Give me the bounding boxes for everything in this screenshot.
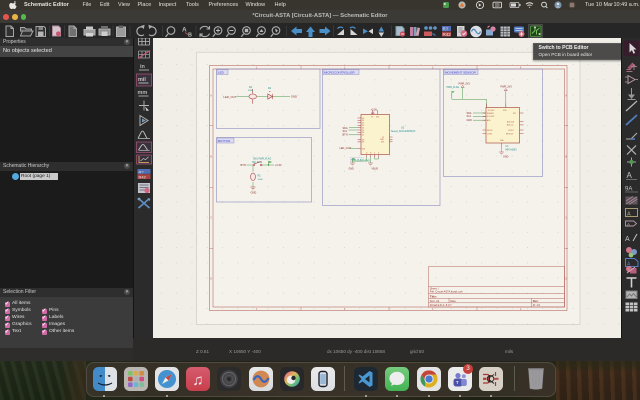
svg-text:PWR_FLAG: PWR_FLAG <box>447 86 460 89</box>
svg-text:GND: GND <box>349 167 355 170</box>
svg-text:C: C <box>565 216 567 219</box>
svg-text:SDA/SDI: SDA/SDI <box>487 111 494 114</box>
svg-text:AD0: AD0 <box>487 119 490 122</box>
svg-text:10kR: 10kR <box>258 178 264 180</box>
svg-text:3V3: 3V3 <box>381 141 384 143</box>
svg-text:PWR_3V3: PWR_3V3 <box>459 82 471 85</box>
svg-text:♫: ♫ <box>193 372 204 389</box>
svg-text:SW1 PWR_FLAG: SW1 PWR_FLAG <box>253 157 271 160</box>
svg-text:INT: INT <box>513 112 516 114</box>
svg-text:BTN: BTN <box>241 163 246 167</box>
svg-text:File: Circuit-ASTA.kicad_sch: File: Circuit-ASTA.kicad_sch <box>430 289 463 293</box>
svg-text:Rev:: Rev: <box>533 299 539 303</box>
svg-text:in: in <box>140 64 146 70</box>
svg-text:SCL/SCK: SCL/SCK <box>487 116 495 118</box>
svg-text:9A: 9A <box>625 186 632 192</box>
svg-text:KiCad E.D.A. 8.0.7: KiCad E.D.A. 8.0.7 <box>430 303 452 307</box>
svg-text:D9: D9 <box>362 141 364 143</box>
svg-text:LED_OUT: LED_OUT <box>224 94 237 98</box>
svg-text:AUX_CL: AUX_CL <box>507 123 514 126</box>
svg-text:A: A <box>182 26 187 33</box>
svg-text:+3.3V: +3.3V <box>371 108 378 111</box>
svg-text:FSYNC: FSYNC <box>487 129 494 131</box>
svg-text:CPOUT: CPOUT <box>508 129 514 131</box>
svg-text:Date:: Date: <box>450 299 456 303</box>
svg-text:LED: LED <box>218 70 225 74</box>
svg-text:Title:: Title: <box>430 294 437 298</box>
svg-text:SCL: SCL <box>343 130 348 133</box>
svg-text:mm: mm <box>138 90 148 96</box>
svg-text:T: T <box>456 379 459 384</box>
svg-text:D: D <box>210 277 212 280</box>
svg-text:MICROCONTROLLER: MICROCONTROLLER <box>324 70 355 74</box>
svg-text:R42: R42 <box>139 174 147 179</box>
svg-text:R?: R? <box>443 26 449 31</box>
svg-text:A: A <box>627 171 633 180</box>
svg-text:3V3: 3V3 <box>376 116 379 118</box>
svg-text:MPU-6050: MPU-6050 <box>506 149 518 151</box>
svg-text:330R: 330R <box>248 90 254 92</box>
svg-text:A: A <box>627 222 630 227</box>
svg-text:BUTTON: BUTTON <box>218 138 230 142</box>
svg-text:GND: GND <box>291 94 297 98</box>
svg-text:R42: R42 <box>443 32 452 37</box>
svg-text:VBUS: VBUS <box>372 167 379 170</box>
svg-text:3: 3 <box>378 152 379 154</box>
svg-text:CLKIN: CLKIN <box>487 133 493 135</box>
svg-text:C: C <box>210 216 212 219</box>
svg-text:D: D <box>565 277 567 280</box>
svg-text:A: A <box>627 211 631 217</box>
svg-text:Id: 1/1: Id: 1/1 <box>533 303 541 307</box>
svg-text:Size: A4: Size: A4 <box>430 299 440 303</box>
svg-text:MOVEMENT SENSOR: MOVEMENT SENSOR <box>445 70 477 74</box>
svg-text:GND: GND <box>467 119 473 122</box>
svg-text:AUX_DA: AUX_DA <box>507 120 515 123</box>
svg-text:PWR_3V3: PWR_3V3 <box>501 85 513 88</box>
svg-text:REGOUT: REGOUT <box>506 133 513 135</box>
svg-text:5: 5 <box>374 152 375 154</box>
svg-text:D7: D7 <box>362 134 364 136</box>
svg-text:mil: mil <box>138 77 146 83</box>
svg-text:A: A <box>625 236 630 243</box>
svg-text:D10: D10 <box>362 148 365 150</box>
svg-text:+3.3V: +3.3V <box>275 163 282 167</box>
svg-text:GND: GND <box>251 190 257 194</box>
svg-text:GND: GND <box>503 155 509 158</box>
svg-text:Seeed_XIAO-ESP32C3: Seeed_XIAO-ESP32C3 <box>391 130 416 133</box>
svg-text:SCL: SCL <box>467 115 472 118</box>
svg-text:BTN: BTN <box>343 133 348 136</box>
svg-text:VLOGIC: VLOGIC <box>488 110 495 112</box>
